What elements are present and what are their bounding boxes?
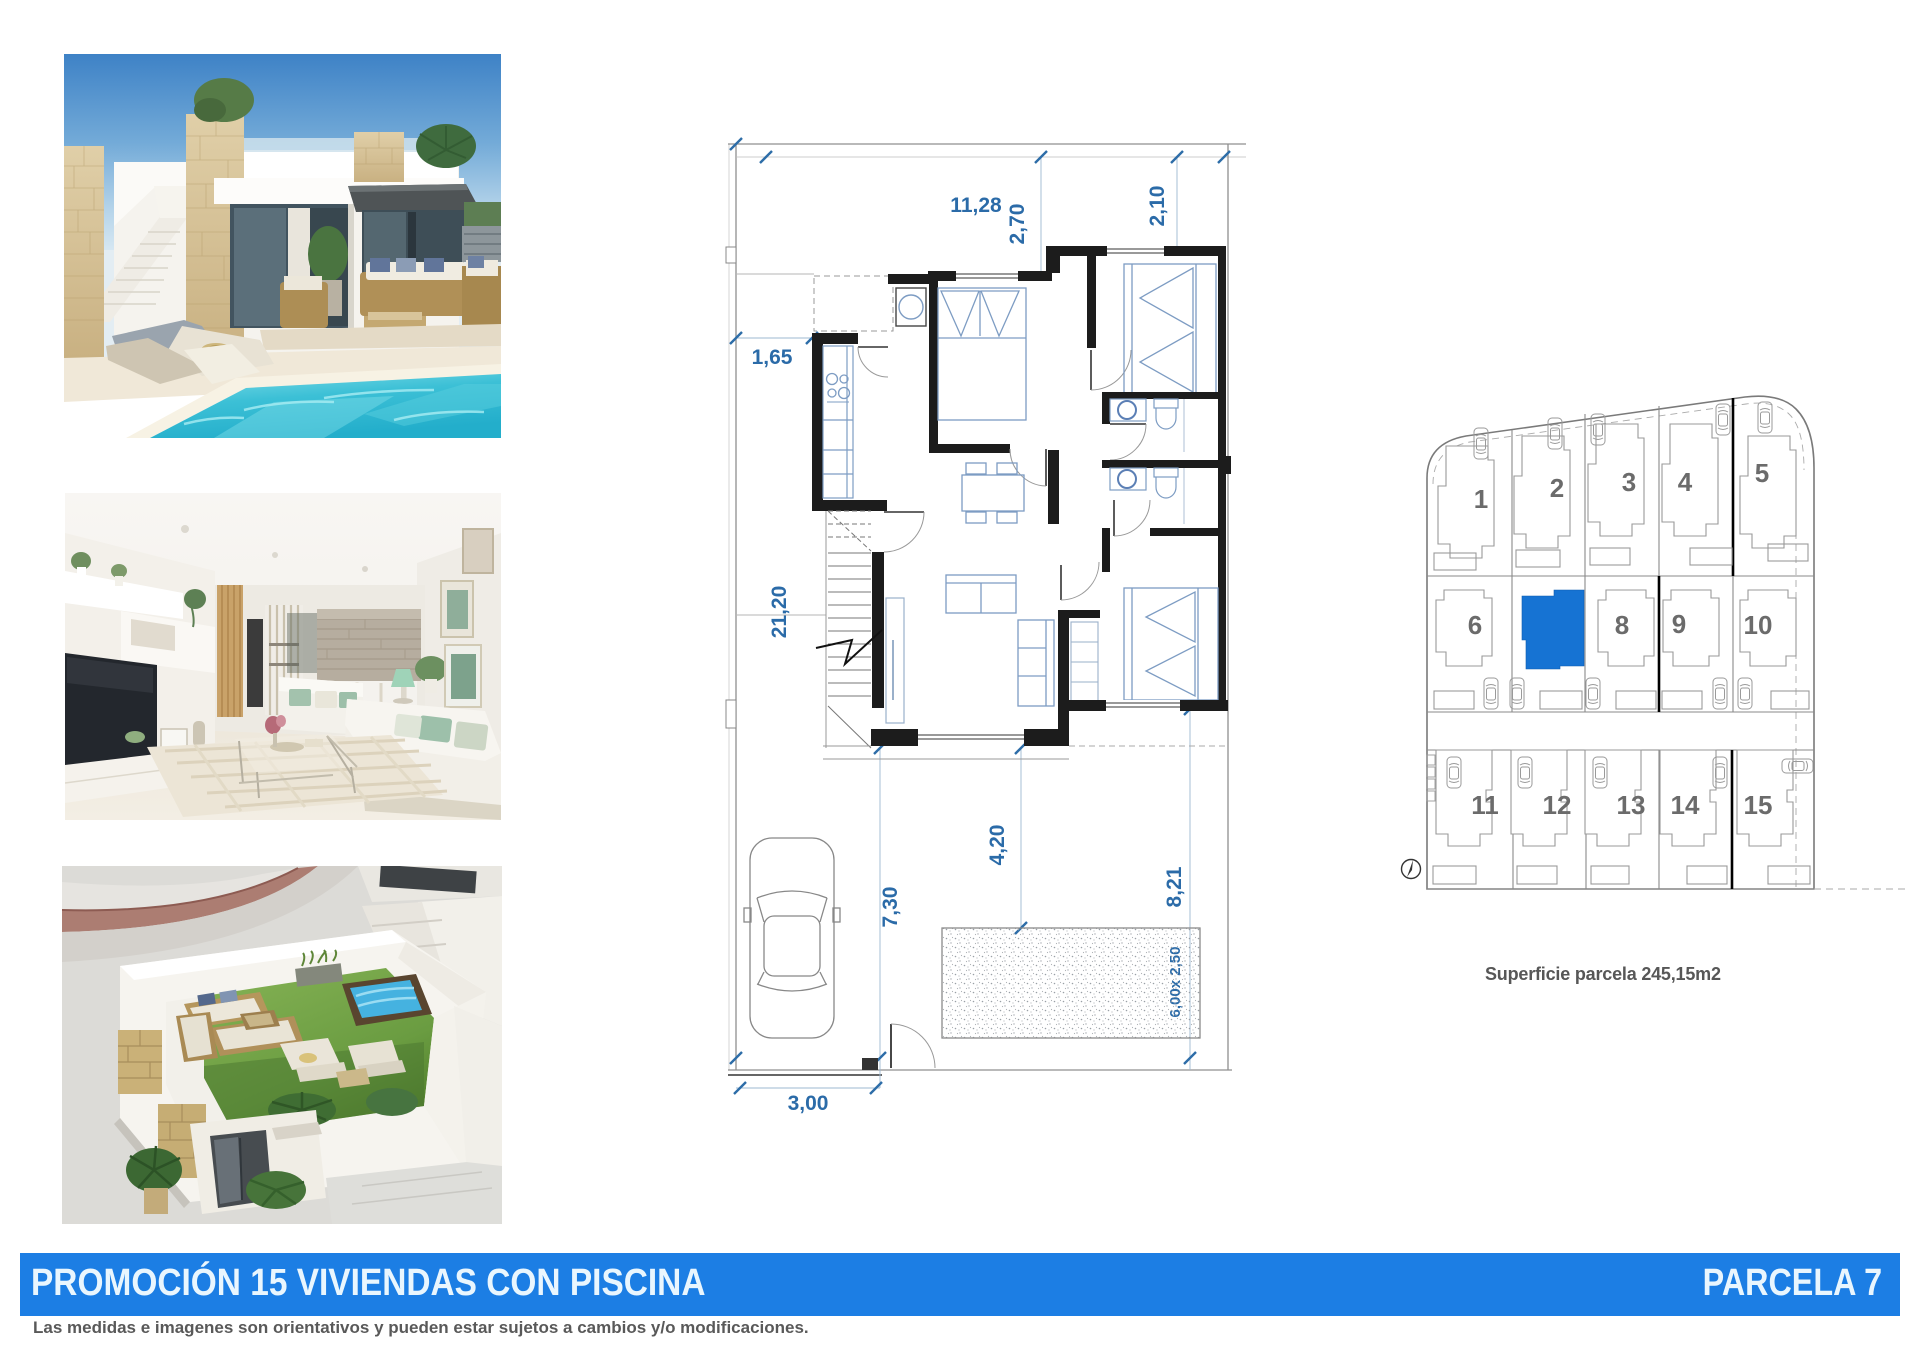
svg-text:Superficie parcela 245,15m2: Superficie parcela 245,15m2: [1485, 964, 1721, 984]
svg-text:15: 15: [1744, 790, 1773, 820]
svg-text:2,70: 2,70: [1006, 204, 1029, 245]
svg-text:6: 6: [1468, 610, 1482, 640]
svg-text:7,30: 7,30: [879, 887, 902, 928]
svg-text:8: 8: [1615, 610, 1629, 640]
svg-text:3,00: 3,00: [788, 1092, 829, 1115]
svg-text:2,10: 2,10: [1146, 186, 1169, 227]
svg-text:11,28: 11,28: [950, 194, 1002, 217]
svg-text:2: 2: [1550, 473, 1564, 503]
svg-text:1: 1: [1474, 484, 1488, 514]
svg-text:1,65: 1,65: [752, 346, 793, 369]
svg-text:12: 12: [1543, 790, 1572, 820]
svg-text:13: 13: [1617, 790, 1646, 820]
svg-text:11: 11: [1471, 790, 1499, 820]
svg-text:3: 3: [1622, 467, 1636, 497]
svg-text:4,20: 4,20: [986, 825, 1009, 866]
svg-text:8,21: 8,21: [1163, 866, 1186, 907]
svg-text:4: 4: [1678, 467, 1693, 497]
svg-text:14: 14: [1671, 790, 1700, 820]
svg-text:21,20: 21,20: [768, 586, 791, 639]
svg-text:9: 9: [1672, 609, 1686, 639]
svg-text:5: 5: [1755, 458, 1769, 488]
svg-text:10: 10: [1744, 610, 1773, 640]
